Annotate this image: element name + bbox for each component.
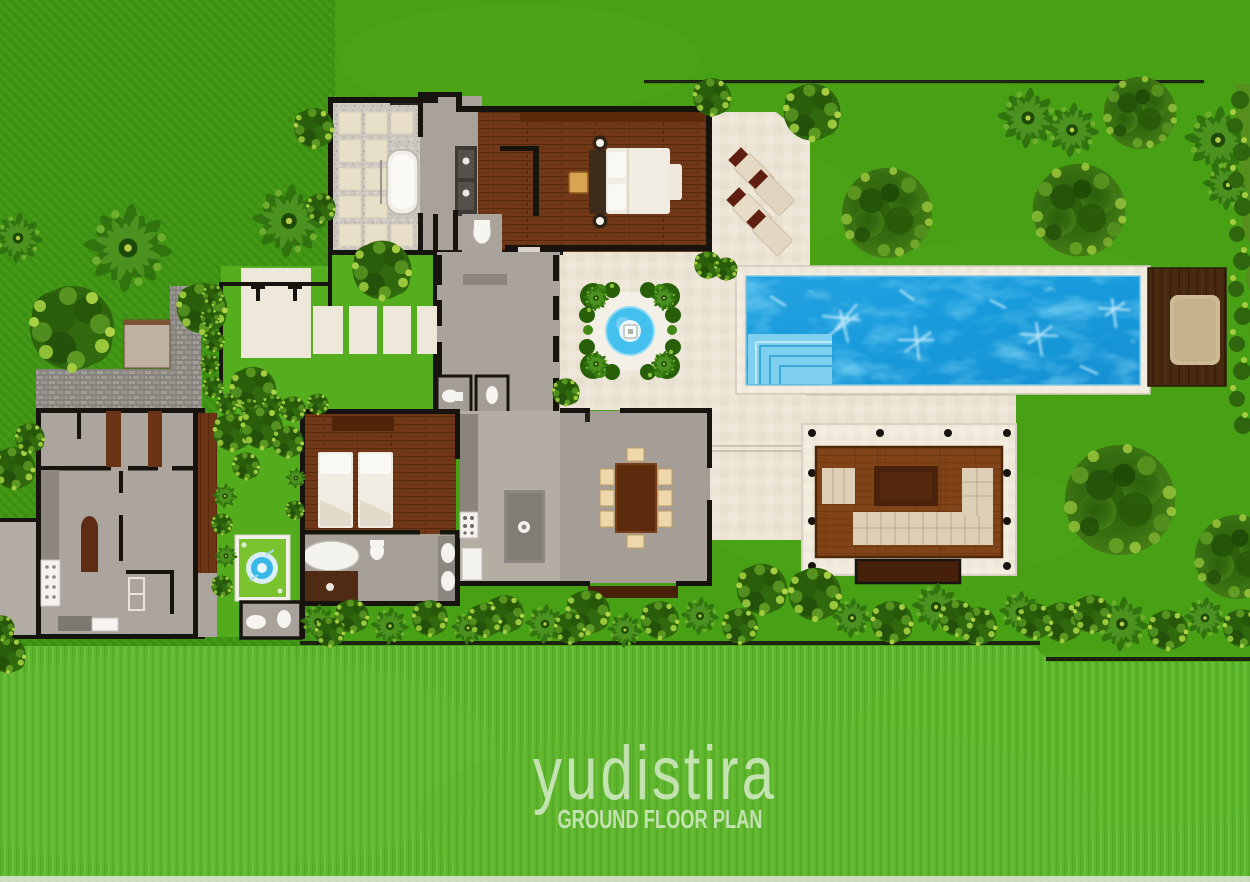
svg-text:GROUND FLOOR PLAN: GROUND FLOOR PLAN — [558, 804, 763, 834]
